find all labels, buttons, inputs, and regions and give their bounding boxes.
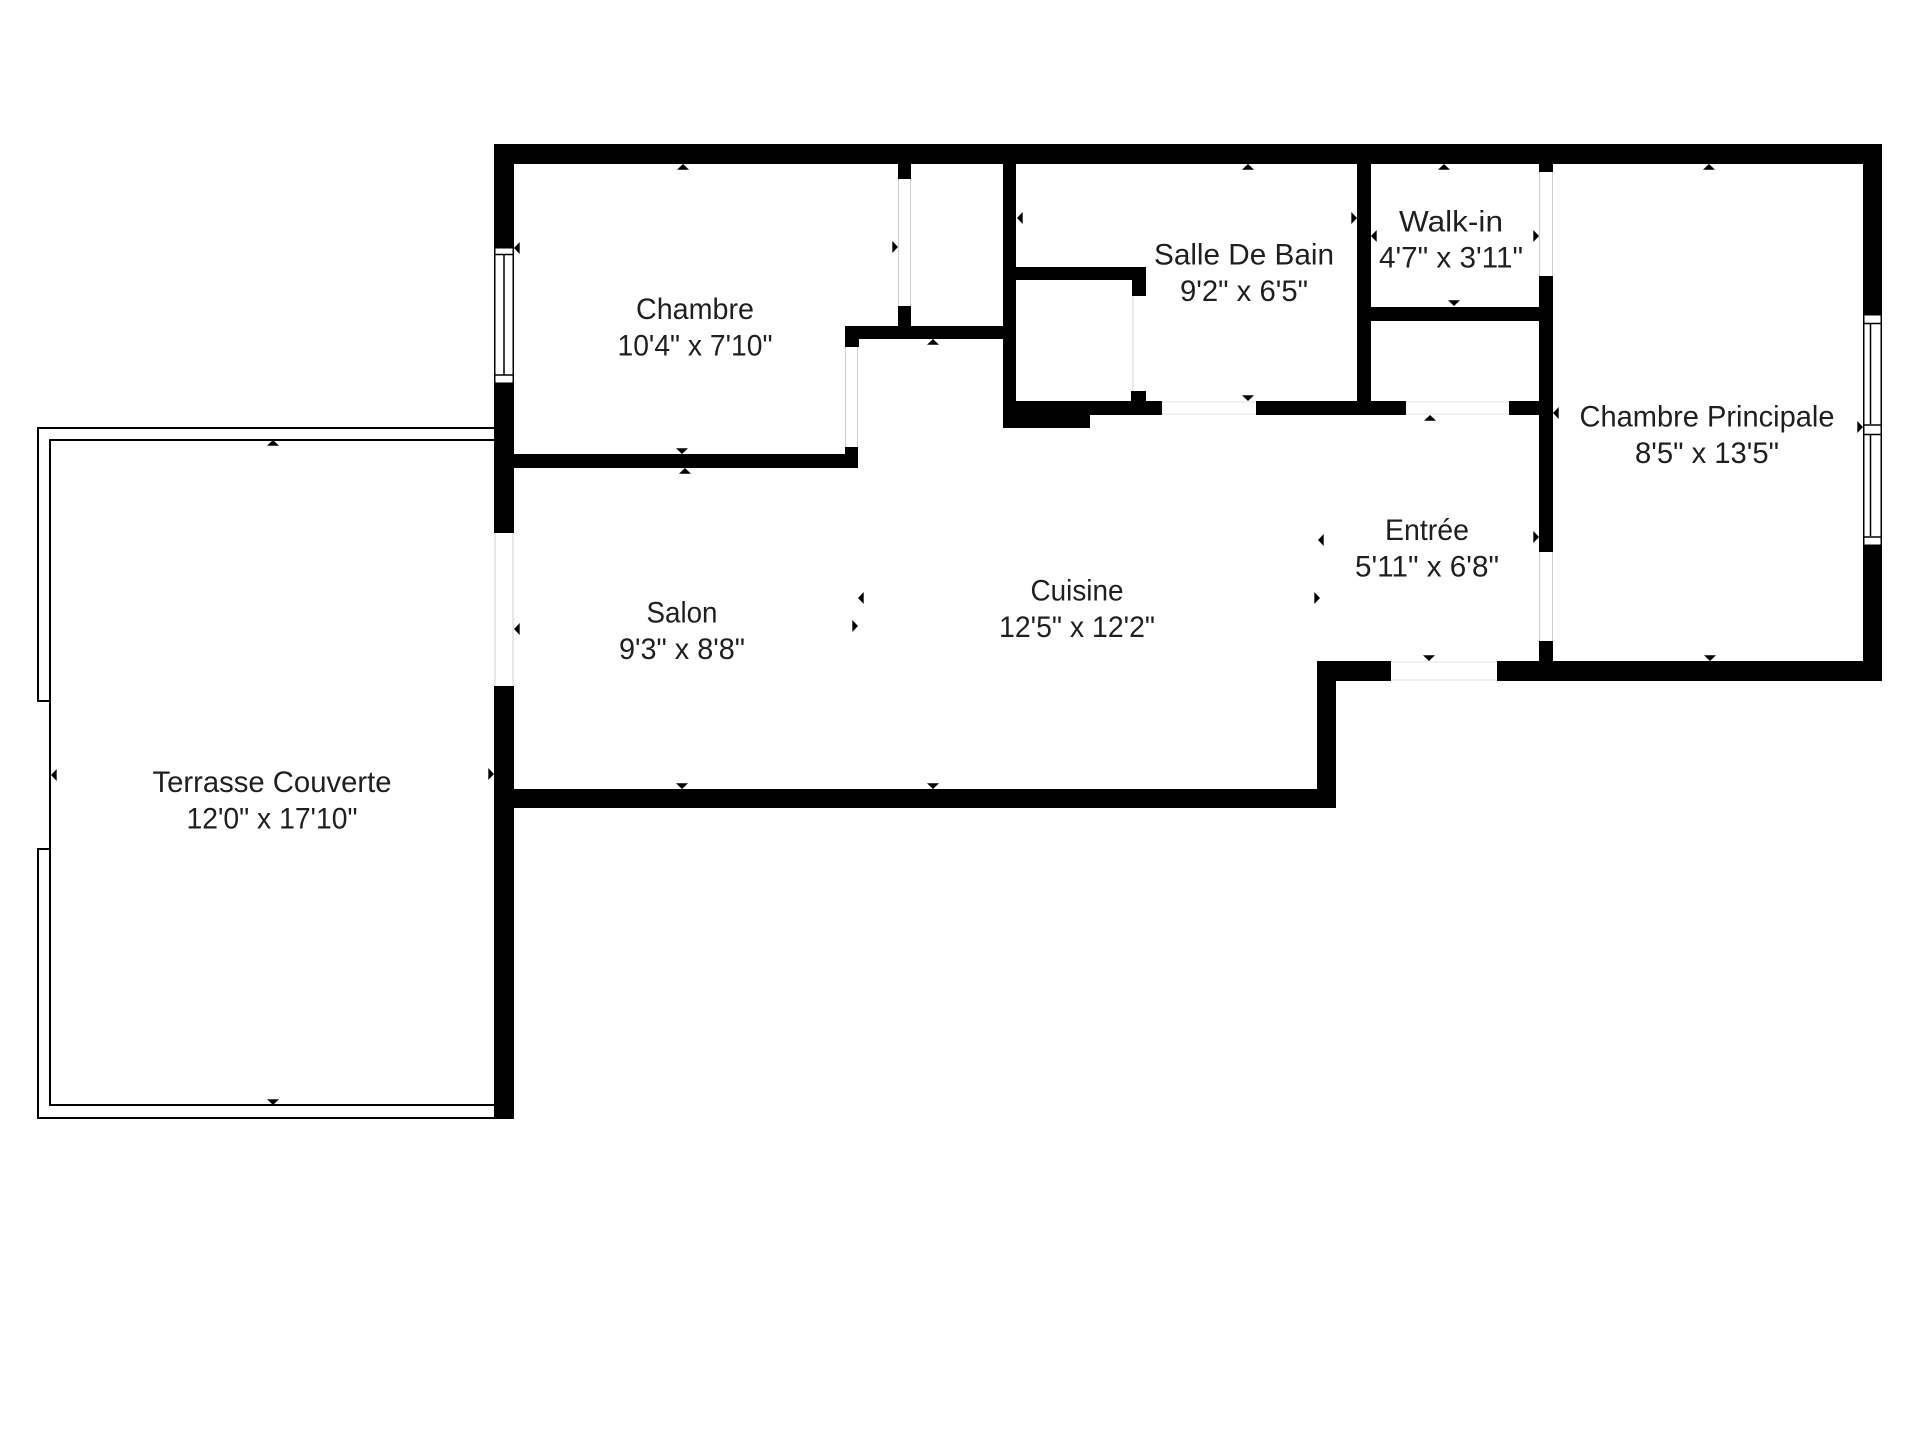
svg-text:Cuisine: Cuisine: [1031, 575, 1124, 608]
svg-text:12'0" x 17'10": 12'0" x 17'10": [187, 803, 358, 836]
svg-text:5'11" x 6'8": 5'11" x 6'8": [1355, 551, 1499, 584]
svg-text:4'7" x 3'11": 4'7" x 3'11": [1379, 242, 1523, 275]
svg-text:Chambre: Chambre: [636, 293, 754, 326]
svg-text:Salon: Salon: [647, 597, 718, 630]
svg-text:Chambre Principale: Chambre Principale: [1580, 401, 1835, 434]
svg-text:9'3" x 8'8": 9'3" x 8'8": [619, 633, 745, 666]
svg-text:10'4" x 7'10": 10'4" x 7'10": [618, 330, 773, 363]
svg-text:9'2" x 6'5": 9'2" x 6'5": [1180, 275, 1308, 308]
svg-text:Salle De Bain: Salle De Bain: [1154, 239, 1334, 272]
svg-text:Entrée: Entrée: [1385, 514, 1469, 547]
svg-text:12'5" x 12'2": 12'5" x 12'2": [999, 611, 1155, 644]
svg-text:8'5" x 13'5": 8'5" x 13'5": [1635, 437, 1779, 470]
svg-text:Walk-in: Walk-in: [1399, 206, 1503, 239]
svg-text:Terrasse Couverte: Terrasse Couverte: [153, 766, 392, 799]
